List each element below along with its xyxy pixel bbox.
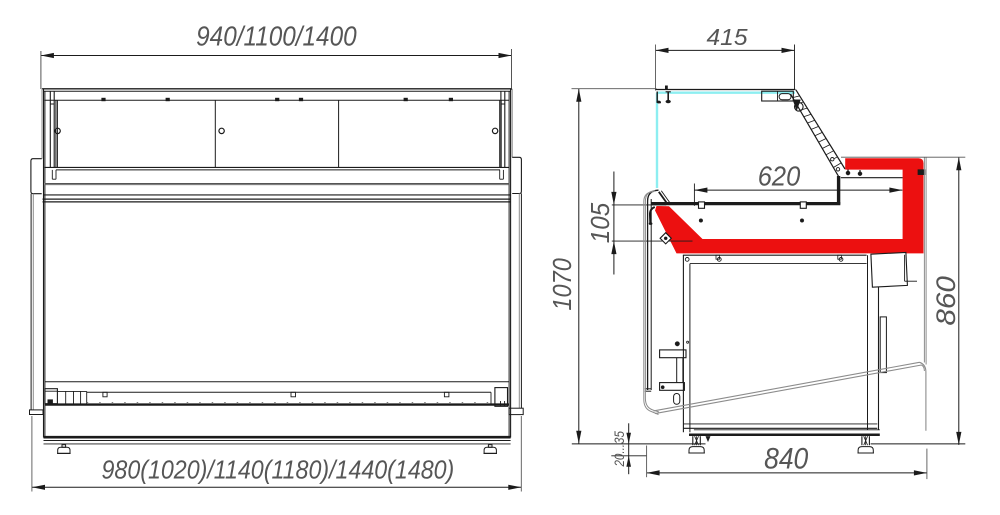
svg-text:980(1020)/1140(1180)/1440(1480: 980(1020)/1140(1180)/1440(1480) [102,454,455,484]
svg-text:840: 840 [764,442,808,475]
svg-text:20...35: 20...35 [611,431,627,467]
svg-text:1070: 1070 [547,258,577,311]
svg-text:415: 415 [707,24,749,50]
svg-text:620: 620 [758,161,801,192]
svg-text:940/1100/1400: 940/1100/1400 [196,20,357,51]
svg-text:105: 105 [585,202,615,243]
svg-text:860: 860 [931,276,961,326]
